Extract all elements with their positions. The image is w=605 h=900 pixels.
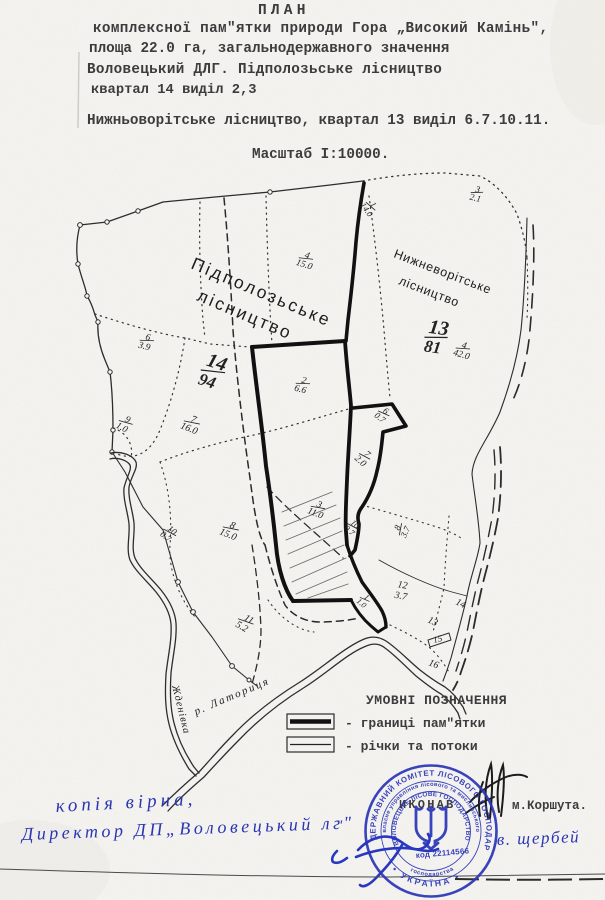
svg-text:м.Коршута.: м.Коршута. [512, 799, 587, 813]
svg-text:81: 81 [423, 336, 442, 357]
svg-text:- границі пам"ятки: - границі пам"ятки [345, 716, 485, 731]
svg-text:": " [336, 818, 343, 834]
svg-text:Масштаб І:10000.: Масштаб І:10000. [252, 147, 389, 163]
svg-text:- річки та потоки: - річки та потоки [345, 739, 478, 754]
svg-text:Нижньоворітське лісництво, ква: Нижньоворітське лісництво, квартал 13 ви… [87, 113, 550, 129]
svg-text:квартал 14 виділ 2,3: квартал 14 виділ 2,3 [91, 82, 257, 98]
svg-text:УМОВНІ ПОЗНАЧЕННЯ: УМОВНІ ПОЗНАЧЕННЯ [366, 693, 507, 708]
svg-text:площа 22.0 га, загальнодержавн: площа 22.0 га, загальнодержавного значен… [89, 41, 449, 57]
svg-text:Воловецький ДЛГ. Підполозьськ: Воловецький ДЛГ. Підполозьське лісництво [87, 62, 442, 78]
svg-text:комплексної пам"ятки природи Г: комплексної пам"ятки природи Гора „Висок… [93, 21, 548, 37]
svg-text:в. щербей: в. щербей [496, 827, 580, 849]
svg-text:ПЛАН: ПЛАН [258, 3, 310, 19]
